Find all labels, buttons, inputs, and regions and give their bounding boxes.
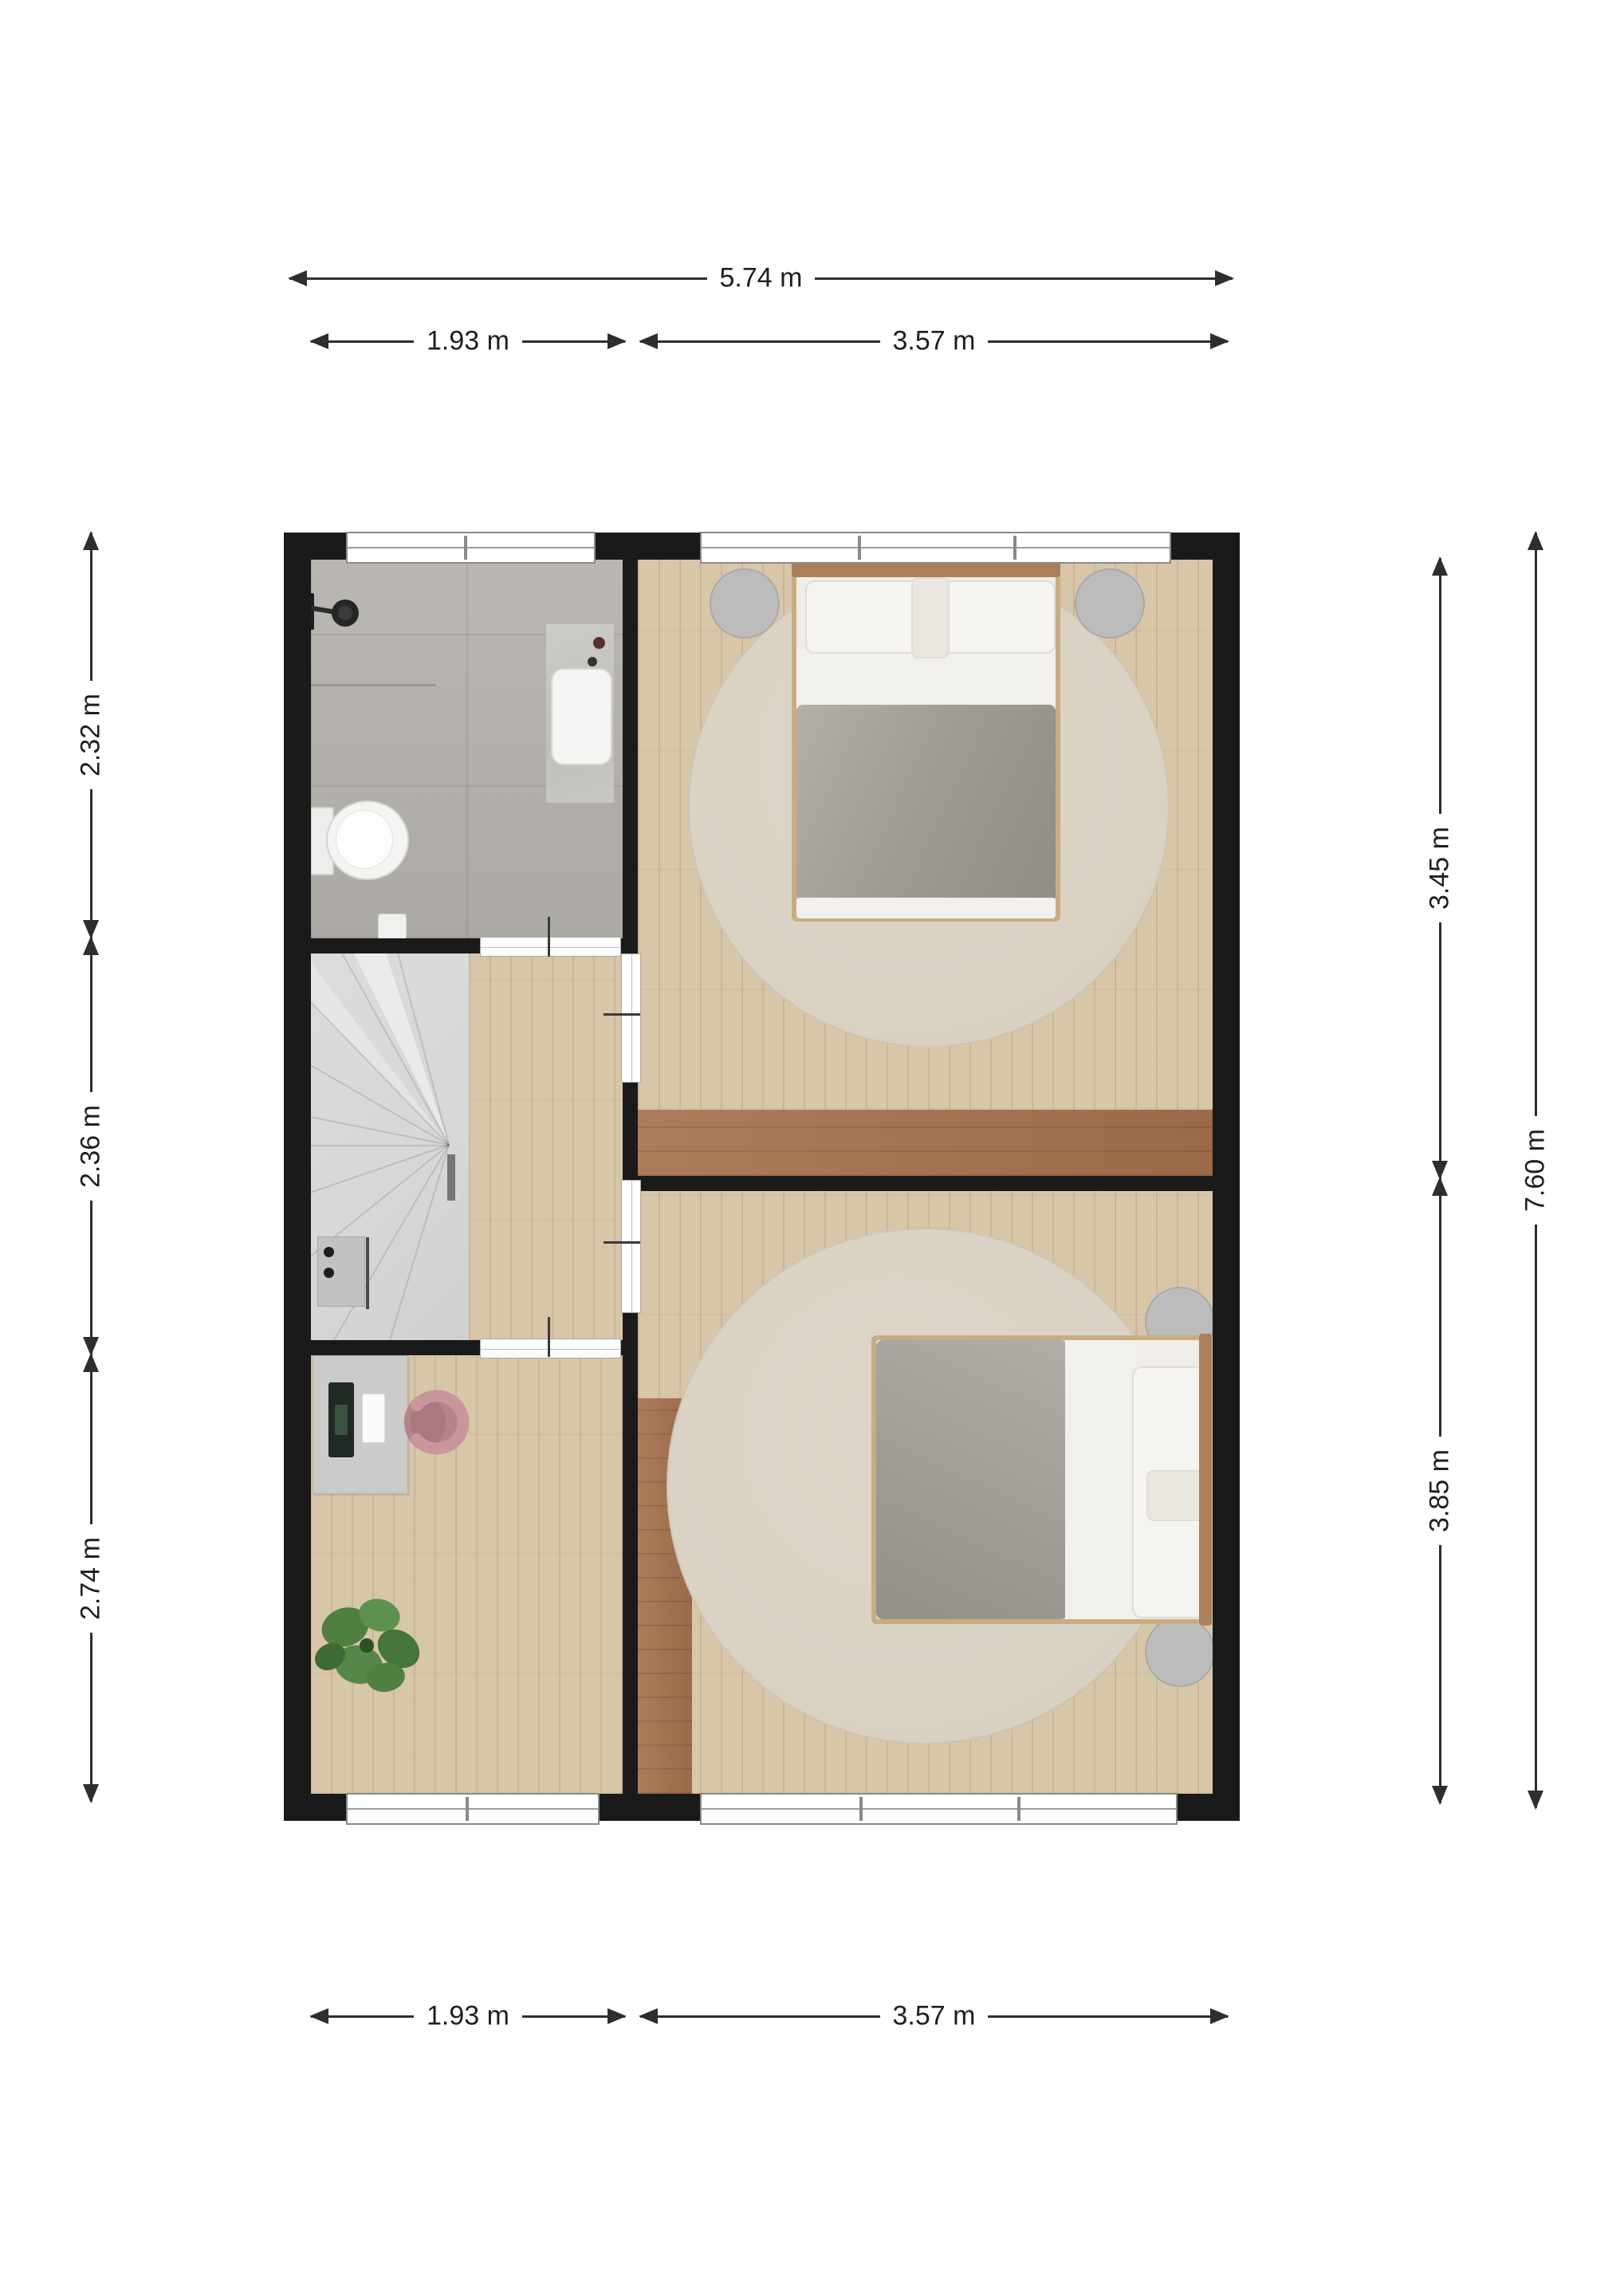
window: [346, 532, 596, 564]
nightstand: [1145, 1617, 1215, 1687]
door-tick: [604, 1013, 640, 1016]
bedroom-1-door: [621, 953, 641, 1083]
bedroom-1-wardrobe-strip: [638, 1110, 1213, 1176]
dimension-label: 1.93 m: [414, 1999, 522, 2034]
office-door: [480, 1339, 621, 1358]
dimension-label: 2.32 m: [74, 681, 108, 789]
dimension-label: 3.85 m: [1423, 1437, 1457, 1545]
duvet: [876, 1340, 1068, 1619]
toilet-seat: [336, 810, 393, 869]
stair-rail: [366, 1237, 369, 1309]
landing-floor: [469, 953, 623, 1340]
pillow: [1146, 1470, 1207, 1521]
laptop: [328, 1382, 354, 1457]
headboard: [1199, 1334, 1212, 1626]
dimension-label: 1.93 m: [414, 324, 522, 359]
pillow: [805, 580, 925, 654]
wall-middle-vertical: [623, 558, 638, 1795]
window: [700, 1793, 1178, 1825]
door-tick: [548, 1317, 550, 1357]
dimension-label: 2.36 m: [74, 1092, 108, 1201]
floor-plan: 5.74 m 1.93 m 3.57 m 1.93 m 3.57 m 2.32 …: [0, 0, 1624, 2296]
bedroom-2-door: [621, 1180, 641, 1313]
soap-dispenser: [593, 637, 605, 649]
dimension-label: 7.60 m: [1519, 1116, 1553, 1225]
cabinet-knob: [324, 1247, 334, 1257]
faucet: [588, 657, 597, 666]
dimension-label: 3.57 m: [880, 1999, 989, 2034]
dimension-label: 2.74 m: [74, 1524, 108, 1633]
plant: [309, 1591, 427, 1704]
pillow: [936, 580, 1056, 654]
shower-screen: [310, 684, 436, 686]
dimension-label: 5.74 m: [707, 261, 816, 296]
sink-basin: [551, 668, 612, 765]
door-tick: [604, 1241, 640, 1244]
shower-icon: [303, 588, 367, 638]
duvet: [796, 705, 1056, 902]
window: [346, 1793, 600, 1825]
nightstand: [1075, 568, 1145, 639]
wall-left: [284, 533, 311, 1821]
bathroom-door: [480, 937, 621, 957]
pillow: [911, 577, 950, 659]
desk: [313, 1355, 408, 1494]
nightstand: [710, 568, 780, 639]
door-tick: [548, 917, 550, 957]
toilet-brush: [378, 914, 407, 941]
wall-right: [1213, 533, 1240, 1821]
wall-bedroom-divider: [638, 1176, 1213, 1191]
dimension-label: 3.45 m: [1423, 814, 1457, 922]
cabinet-knob: [324, 1268, 334, 1278]
notepad: [362, 1394, 385, 1443]
desk-chair: [401, 1386, 474, 1461]
window: [700, 532, 1171, 564]
dimension-label: 3.57 m: [880, 324, 989, 359]
